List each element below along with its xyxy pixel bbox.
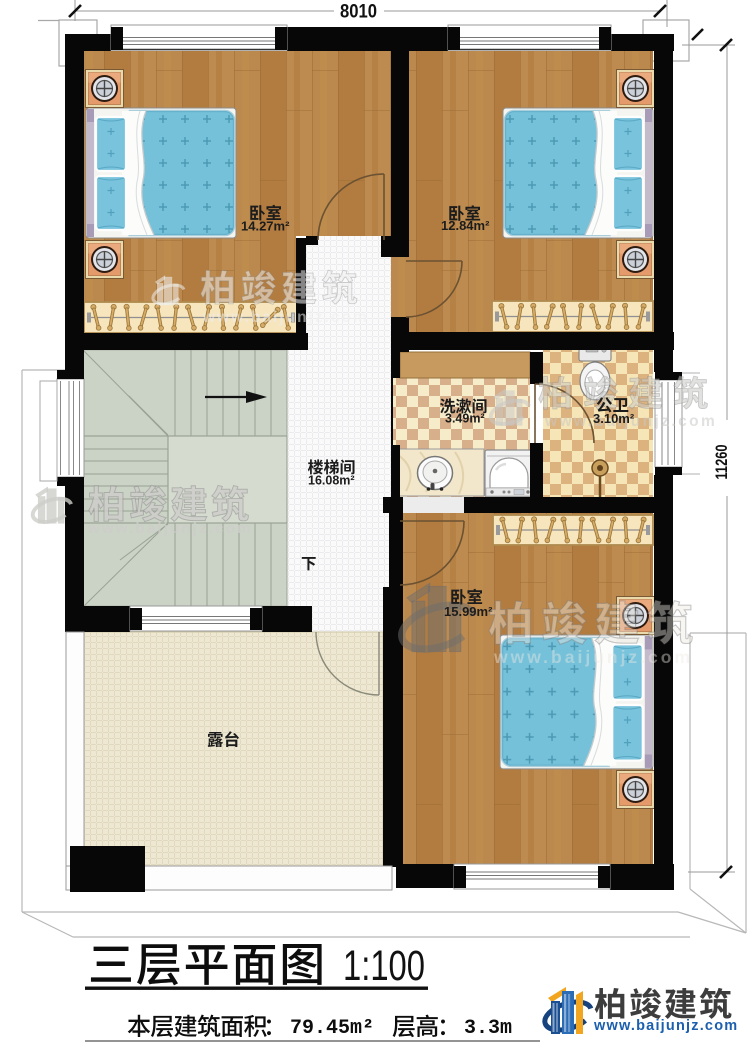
svg-text:3.49m²: 3.49m² [445, 412, 485, 426]
svg-text:3.10m²: 3.10m² [593, 411, 635, 426]
svg-text:www.baijunjz.com: www.baijunjz.com [202, 309, 369, 326]
svg-text:www.baijunjz.com: www.baijunjz.com [493, 647, 693, 667]
svg-text:www.baijunjz.com: www.baijunjz.com [87, 520, 253, 537]
svg-text:14.27m²: 14.27m² [241, 219, 290, 234]
svg-text:3.3m: 3.3m [464, 1017, 512, 1040]
svg-text:15.99m²: 15.99m² [444, 604, 493, 619]
svg-text:1:100: 1:100 [343, 942, 425, 990]
svg-text:11260: 11260 [712, 445, 731, 480]
svg-text:16.08m²: 16.08m² [308, 474, 355, 488]
svg-text:8010: 8010 [340, 2, 377, 23]
svg-text:www.baijunjz.com: www.baijunjz.com [593, 1018, 738, 1034]
svg-text:12.84m²: 12.84m² [441, 218, 490, 233]
svg-text:79.45m²: 79.45m² [290, 1017, 374, 1040]
